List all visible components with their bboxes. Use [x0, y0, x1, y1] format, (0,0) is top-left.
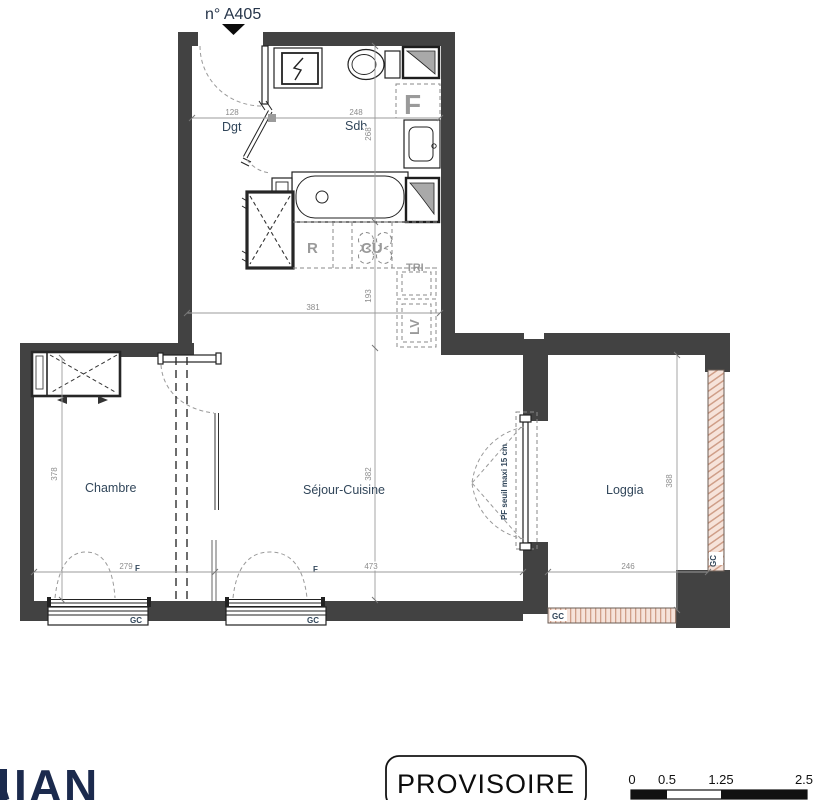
- floor-plan-page: n° A405 GC GC: [0, 0, 817, 800]
- dim-sejour-depth: 382: [364, 467, 373, 481]
- dim-sejour-width: 473: [364, 562, 378, 571]
- dim-sdb-width: 248: [349, 108, 363, 117]
- dim-sdb-depth: 268: [364, 127, 373, 141]
- corner-washbasin-top: [403, 47, 439, 78]
- toilet: [348, 50, 410, 80]
- pf-note-label: PF seuil maxi 15 cm: [500, 444, 509, 520]
- chambre-sejour-partition: [176, 357, 216, 601]
- unit-number-label: n° A405: [205, 6, 261, 23]
- pf-door: PF seuil maxi 15 cm: [472, 412, 537, 550]
- scale-tick-0: 0: [628, 772, 635, 787]
- cooktop-label: CU: [361, 240, 383, 257]
- dim-dgt-width: 128: [225, 108, 239, 117]
- bath-fixture-label: F: [404, 89, 421, 120]
- dim-kitchen-depth: 193: [364, 289, 373, 303]
- brand-logo: IAN: [0, 760, 99, 800]
- floor-plan-drawing: n° A405 GC GC: [0, 0, 817, 800]
- window2-label: F: [313, 565, 318, 574]
- scale-tick-25: 2.5: [795, 772, 813, 787]
- chambre-closet: [32, 352, 120, 404]
- window-2: F GC: [225, 552, 326, 625]
- guardrail-right-label: GC: [709, 555, 718, 567]
- scale-tick-125: 1.25: [708, 772, 733, 787]
- scale-tick-05: 0.5: [658, 772, 676, 787]
- dim-loggia-depth: 388: [665, 474, 674, 488]
- room-label-dgt: Dgt: [222, 120, 242, 134]
- dim-loggia-width: 246: [621, 562, 635, 571]
- room-label-sejour: Séjour-Cuisine: [303, 483, 385, 497]
- kitchen-closet: [242, 192, 293, 268]
- electrical-panel: [274, 48, 322, 88]
- unit-header: n° A405: [205, 6, 261, 35]
- room-label-loggia: Loggia: [606, 483, 644, 497]
- scale-bar: 0 0.5 1.25 2.5: [628, 772, 813, 799]
- entry-door: [200, 46, 272, 110]
- corner-washbasin-bottom: [406, 178, 439, 222]
- bathtub: [292, 172, 408, 222]
- dim-kitchen-width: 381: [306, 303, 320, 312]
- brand-logo-text: IAN: [14, 760, 99, 800]
- dim-chambre-depth: 378: [50, 467, 59, 481]
- window2-guardrail-label: GC: [307, 616, 319, 625]
- loggia-guardrail-bottom: GC: [548, 608, 676, 623]
- window1-guardrail-label: GC: [130, 616, 142, 625]
- dishwasher-label: LV: [407, 319, 422, 335]
- entry-arrow-icon: [222, 24, 245, 35]
- guardrail-bottom-label: GC: [552, 612, 564, 621]
- chambre-door: [158, 353, 221, 510]
- washbasin: [404, 120, 440, 168]
- sorting-dishwasher-zone: TRI LV: [397, 262, 436, 347]
- dimensions: 128 248 381 268 193 382 279 473 246 378 …: [31, 43, 711, 613]
- loggia-guardrail-right: GC: [708, 370, 724, 571]
- room-label-chambre: Chambre: [85, 481, 136, 495]
- bathroom-door: [241, 111, 272, 174]
- window-1: F GC: [47, 552, 151, 625]
- towel-dryer-zone: F: [396, 84, 440, 120]
- fridge-label: R: [307, 240, 318, 257]
- dim-chambre-width: 279: [119, 562, 133, 571]
- stamp-label: PROVISOIRE: [397, 769, 575, 799]
- provisoire-stamp: PROVISOIRE: [386, 756, 586, 800]
